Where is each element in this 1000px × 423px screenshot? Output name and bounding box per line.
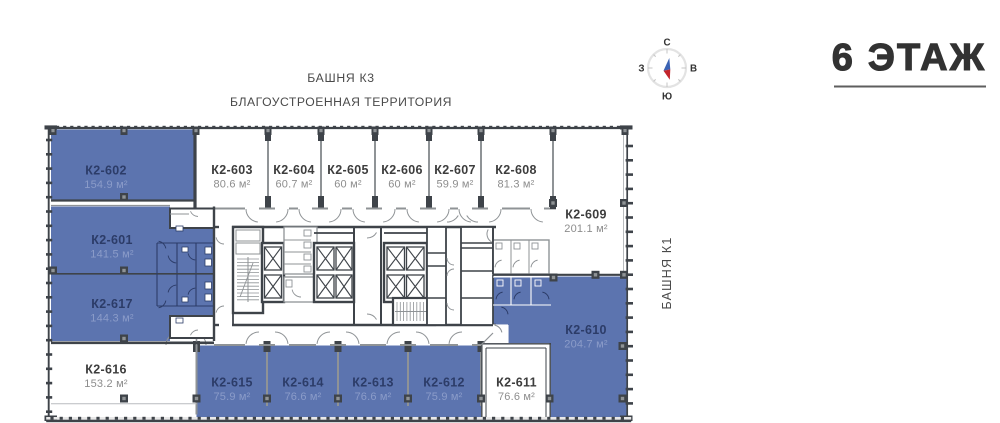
svg-text:144.3 м²: 144.3 м² [90, 313, 134, 325]
svg-text:БЛАГОУСТРОЕННАЯ ТЕРРИТОРИЯ: БЛАГОУСТРОЕННАЯ ТЕРРИТОРИЯ [230, 95, 452, 109]
svg-text:З: З [638, 64, 644, 75]
svg-text:60 м²: 60 м² [334, 179, 362, 191]
svg-text:К2-616: К2-616 [85, 363, 126, 377]
svg-text:80.6 м²: 80.6 м² [213, 179, 250, 191]
svg-text:76.6 м²: 76.6 м² [354, 391, 391, 403]
svg-text:204.7 м²: 204.7 м² [564, 339, 608, 351]
svg-text:БАШНЯ К1: БАШНЯ К1 [660, 236, 674, 309]
svg-text:60 м²: 60 м² [388, 179, 416, 191]
svg-text:153.2 м²: 153.2 м² [84, 378, 128, 390]
svg-text:К2-613: К2-613 [352, 376, 393, 390]
svg-text:К2-617: К2-617 [91, 297, 132, 311]
svg-text:К2-615: К2-615 [211, 376, 252, 390]
svg-text:201.1 м²: 201.1 м² [564, 223, 608, 235]
svg-text:К2-603: К2-603 [211, 163, 252, 177]
svg-text:75.9 м²: 75.9 м² [213, 391, 250, 403]
svg-text:81.3 м²: 81.3 м² [497, 179, 534, 191]
svg-text:К2-602: К2-602 [85, 164, 126, 178]
svg-text:59.9 м²: 59.9 м² [436, 179, 473, 191]
svg-text:К2-612: К2-612 [423, 376, 464, 390]
svg-text:6 ЭТАЖ: 6 ЭТАЖ [832, 37, 987, 79]
svg-text:К2-610: К2-610 [565, 323, 606, 337]
svg-text:К2-604: К2-604 [273, 163, 314, 177]
svg-text:Ю: Ю [662, 92, 672, 103]
svg-text:В: В [690, 64, 697, 75]
svg-text:К2-611: К2-611 [496, 376, 537, 390]
svg-text:К2-607: К2-607 [434, 163, 475, 177]
svg-text:60.7 м²: 60.7 м² [275, 179, 312, 191]
svg-text:К2-606: К2-606 [381, 163, 422, 177]
svg-text:К2-601: К2-601 [91, 233, 132, 247]
svg-text:К2-609: К2-609 [565, 208, 606, 222]
svg-text:76.6 м²: 76.6 м² [284, 391, 321, 403]
svg-text:БАШНЯ К3: БАШНЯ К3 [307, 71, 375, 85]
svg-text:К2-605: К2-605 [327, 163, 368, 177]
svg-text:К2-608: К2-608 [495, 163, 536, 177]
svg-text:76.6 м²: 76.6 м² [498, 391, 535, 403]
svg-text:75.9 м²: 75.9 м² [425, 391, 462, 403]
svg-text:141.5 м²: 141.5 м² [90, 249, 134, 261]
svg-text:К2-614: К2-614 [282, 376, 323, 390]
svg-text:154.9 м²: 154.9 м² [84, 179, 128, 191]
svg-text:С: С [663, 38, 670, 49]
